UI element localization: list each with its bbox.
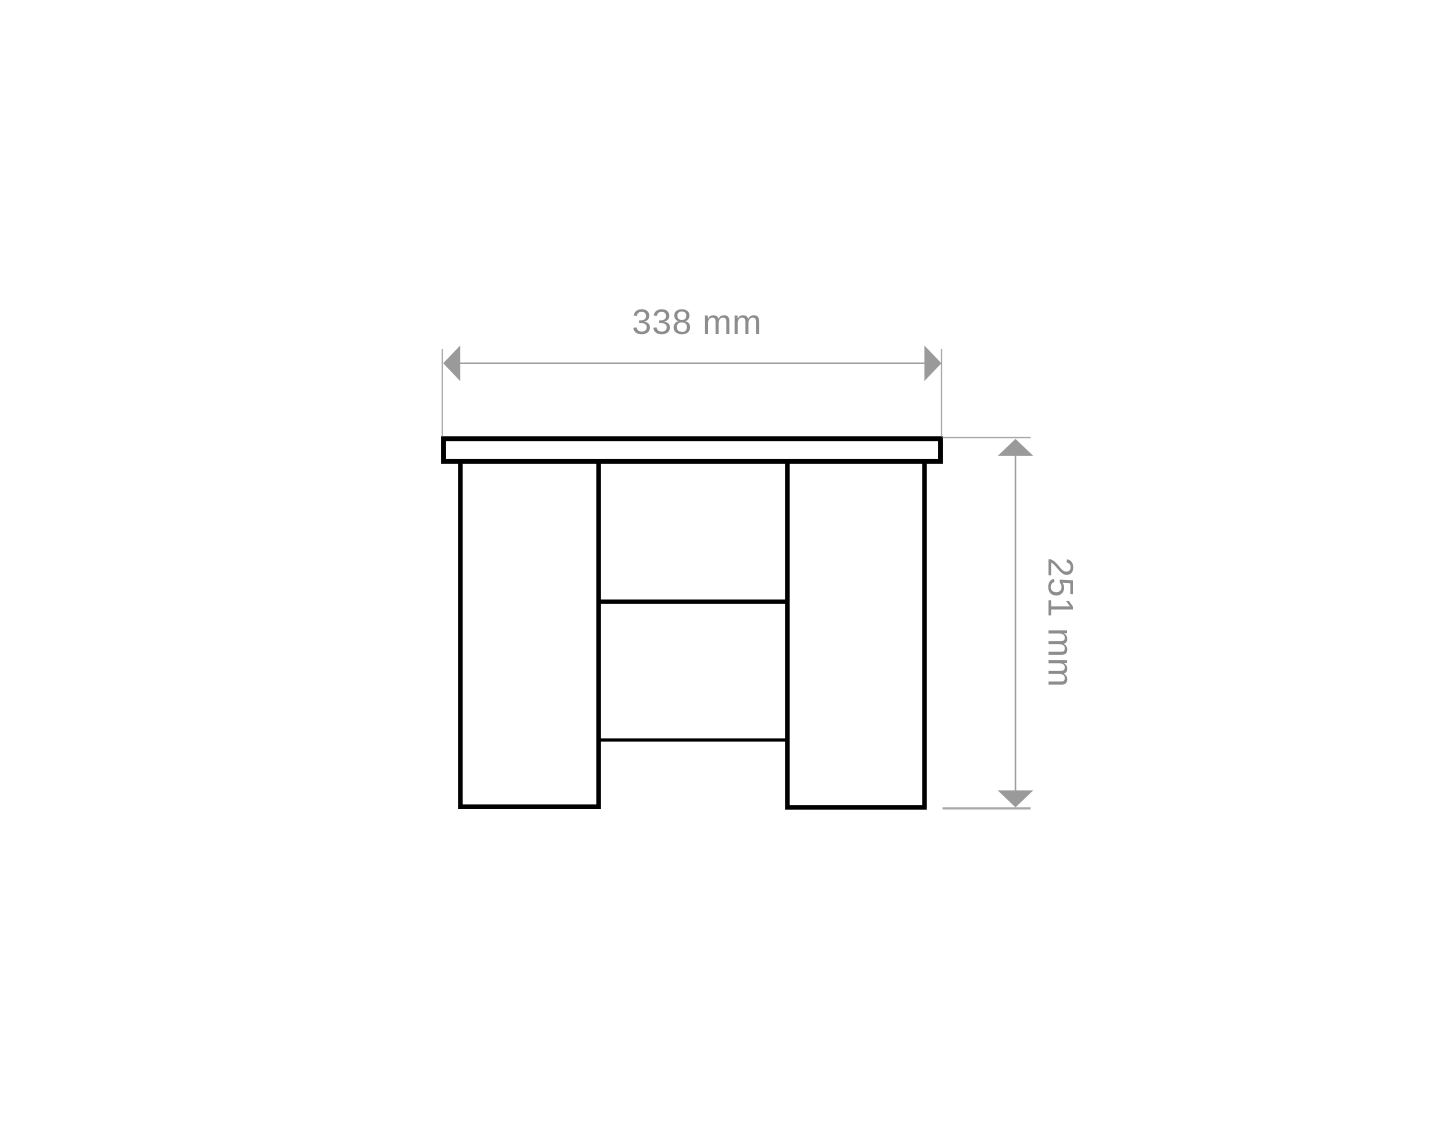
- svg-text:251 mm: 251 mm: [1041, 557, 1080, 687]
- svg-text:338 mm: 338 mm: [632, 303, 762, 342]
